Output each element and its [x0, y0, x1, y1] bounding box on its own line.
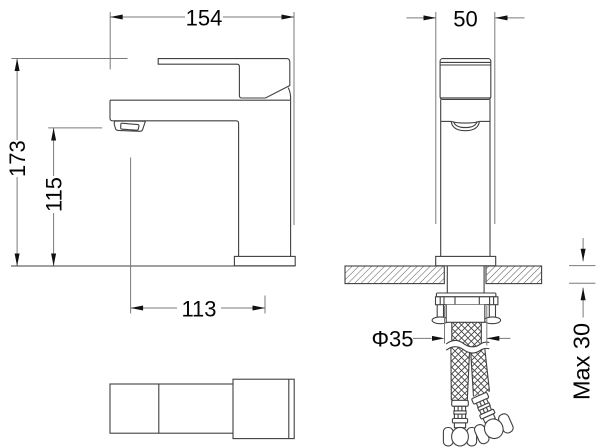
- svg-text:Max 30: Max 30: [569, 323, 595, 400]
- svg-text:154: 154: [186, 6, 223, 31]
- svg-text:Φ35: Φ35: [371, 326, 413, 351]
- svg-text:50: 50: [453, 7, 477, 32]
- svg-text:113: 113: [181, 297, 216, 322]
- svg-text:173: 173: [5, 140, 30, 177]
- svg-text:115: 115: [41, 177, 66, 212]
